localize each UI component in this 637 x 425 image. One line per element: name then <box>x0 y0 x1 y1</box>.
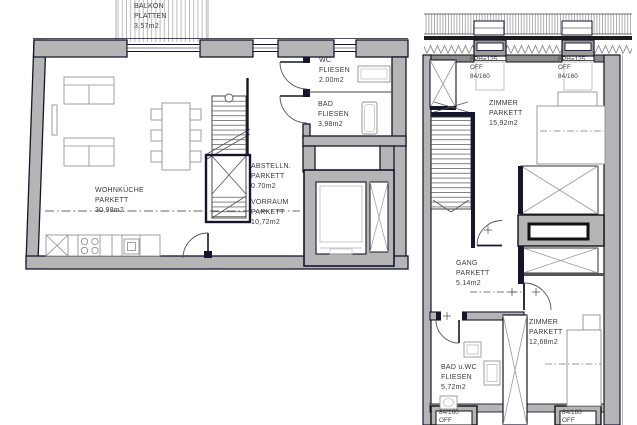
kitchen-counter <box>46 235 160 256</box>
window-tag-bottom-left: 84/160 OFF <box>439 409 459 425</box>
right-plan-left-wall <box>423 55 431 425</box>
floor-plan: BALKON PLATTEN 3,57m2 WOHNKÜCHE PARKETT … <box>0 0 637 425</box>
room-label-zimmer-top: ZIMMER PARKETT 15,92m2 <box>489 99 523 128</box>
bed-bottom <box>567 315 601 406</box>
left-plan <box>26 0 408 269</box>
dining-table <box>151 103 201 170</box>
room-label-balkon: BALKON PLATTEN 3,57m2 <box>134 2 167 31</box>
room-label-gang: GANG PARKETT 5.14m2 <box>456 259 490 288</box>
window-tag-bottom-right: 84/160 OFF <box>562 409 582 425</box>
kitchen-door <box>183 233 212 258</box>
right-plan-right-wall <box>604 55 620 425</box>
room-label-bad-wc: BAD u.WC FLIESEN 5,72m2 <box>441 363 477 392</box>
bad-door <box>280 96 307 123</box>
zimmer-bottom-door <box>524 283 551 310</box>
zimmer-top-door <box>477 221 502 246</box>
room-label-wc: WC FLIESEN 2.00m2 <box>319 56 350 85</box>
room-label-wohnkueche: WOHNKÜCHE PARKETT 30,98m2 <box>95 186 144 215</box>
room-label-vorraum: VORRAUM PARKETT 10,72m2 <box>251 198 289 227</box>
window-tag-roof-right: FPH=125 OFF 84/160 <box>558 56 585 81</box>
bed-top <box>537 92 605 164</box>
elevator-left <box>304 170 394 266</box>
room-label-zimmer-bottom: ZIMMER PARKETT 12,68m2 <box>529 318 563 347</box>
elevator-right <box>518 215 604 246</box>
window-tag-roof-left: FPH=125 OFF 84/160 <box>470 56 497 81</box>
room-label-bad: BAD FLIESEN 3,98m2 <box>318 100 349 129</box>
staircase-right <box>431 102 475 248</box>
chimney-bottom <box>503 315 527 425</box>
wc-sink <box>358 66 390 82</box>
roof-hatch <box>424 14 632 34</box>
room-label-abstellraum: ABSTELLN. PARKETT 0.70m2 <box>251 162 291 191</box>
sofa <box>52 77 114 166</box>
wc-door <box>280 62 307 89</box>
wardrobe-gang <box>523 248 598 273</box>
staircase-left <box>206 78 250 222</box>
gang-wall <box>518 246 524 284</box>
wardrobe-top <box>518 166 598 214</box>
chimney-shaft <box>430 60 456 110</box>
